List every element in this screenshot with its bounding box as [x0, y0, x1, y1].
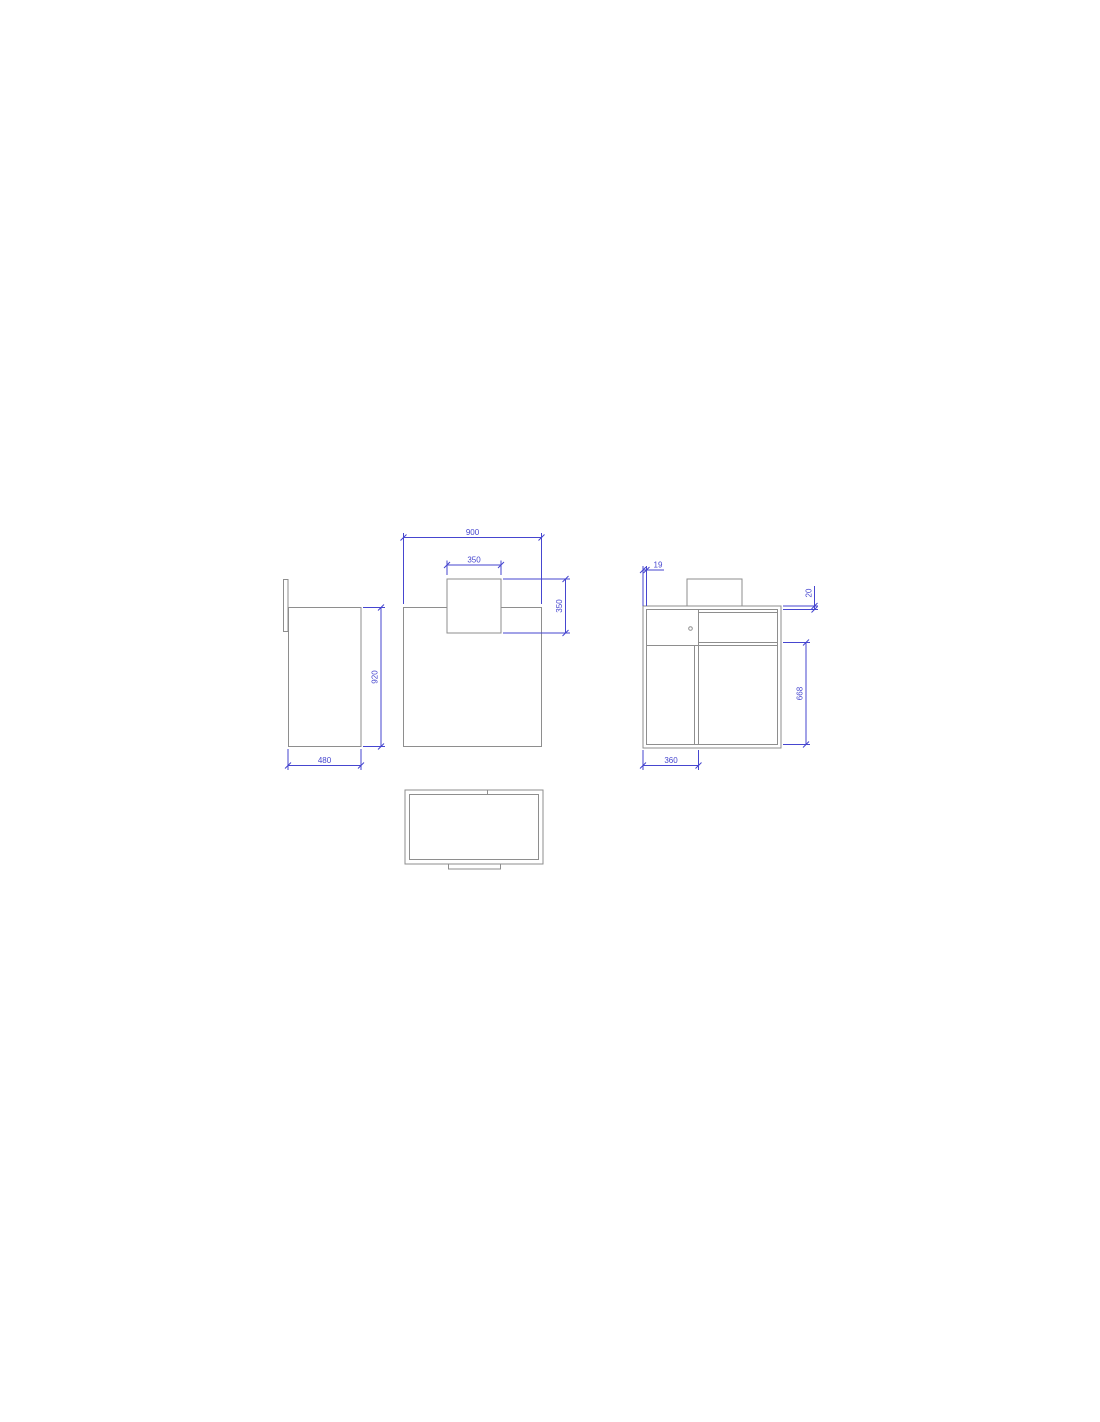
- side-riser-panel-profile: [284, 580, 289, 632]
- cabinet-inner-outline: [647, 610, 778, 745]
- technical-drawing-canvas: 920 480 900 350: [0, 0, 1100, 1422]
- dim-panel-thickness-label: 19: [654, 561, 663, 570]
- plan-outer-outline: [405, 790, 543, 864]
- plan-front-box-footprint: [449, 864, 501, 869]
- side-body-outline: [289, 608, 362, 747]
- dim-top-box-width-label: 350: [467, 556, 481, 565]
- dim-left-module-width-label: 360: [664, 756, 678, 765]
- side-view: 920 480: [284, 580, 386, 771]
- dim-top-box-width: 350: [444, 556, 504, 576]
- dim-side-height-label: 920: [371, 670, 380, 684]
- dim-side-depth: 480: [285, 749, 364, 770]
- plan-view: [405, 790, 543, 869]
- countertop-riser-box: [687, 579, 742, 606]
- dim-front-width-label: 900: [466, 528, 480, 537]
- detail-front-view: 19 20 668 360: [640, 561, 818, 771]
- plan-inner-outline: [410, 795, 539, 860]
- drawer-knob: [689, 627, 693, 631]
- dim-side-height: 920: [363, 605, 385, 750]
- dim-countertop-thickness-label: 20: [805, 588, 814, 597]
- front-top-box: [447, 579, 501, 633]
- dim-door-section-height-label: 668: [796, 686, 805, 700]
- dim-top-box-height: 350: [503, 576, 570, 636]
- dim-countertop-thickness: 20: [783, 586, 818, 613]
- drawing-page: 920 480 900 350: [0, 0, 1100, 1422]
- dim-door-section-height: 668: [783, 640, 810, 748]
- dim-side-depth-label: 480: [318, 756, 332, 765]
- dim-left-module-width: 360: [640, 750, 702, 770]
- front-view: 900 350 350: [401, 528, 571, 747]
- cabinet-outer-outline: [643, 606, 781, 748]
- dim-panel-thickness: 19: [640, 561, 664, 607]
- dim-top-box-height-label: 350: [555, 599, 564, 613]
